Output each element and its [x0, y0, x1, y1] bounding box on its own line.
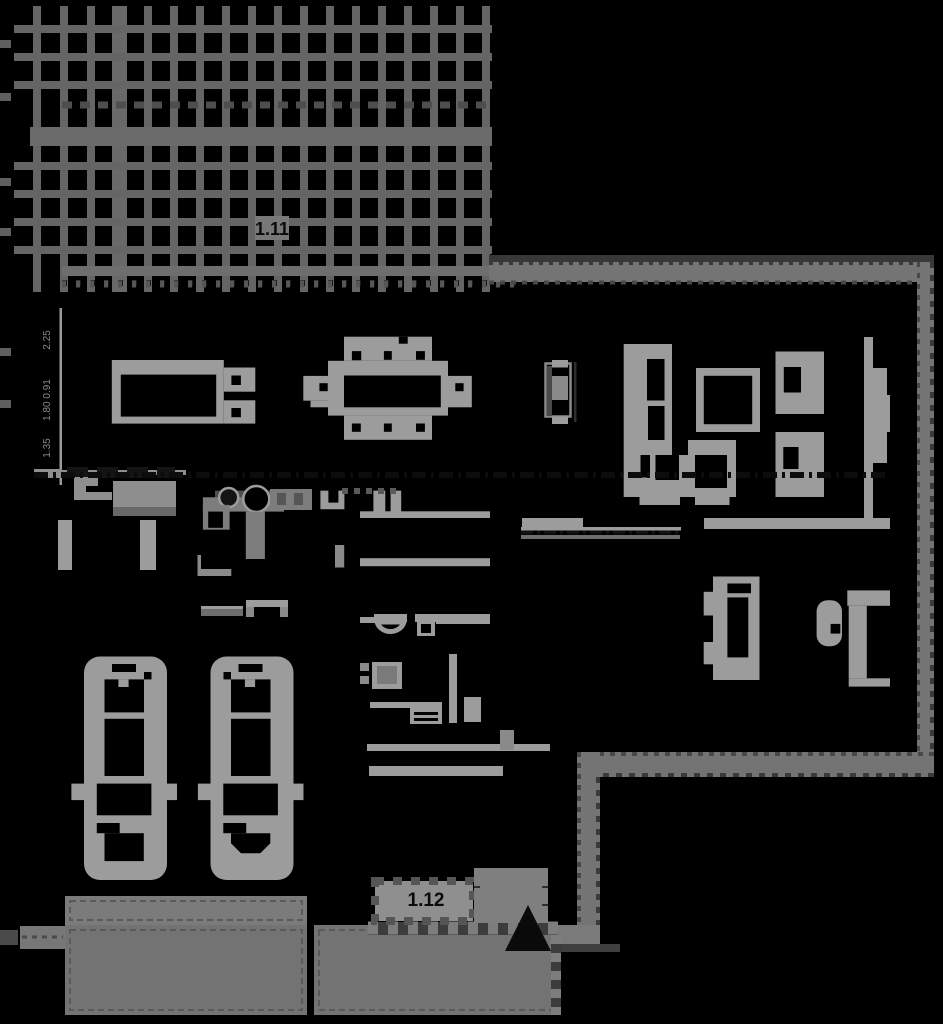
- svg-text:1.11: 1.11: [255, 219, 289, 239]
- svg-text:1.12: 1.12: [408, 890, 445, 911]
- svg-text:1.35: 1.35: [42, 438, 53, 458]
- svg-text:1.80 0.91: 1.80 0.91: [42, 379, 53, 421]
- svg-text:2.25: 2.25: [42, 330, 53, 350]
